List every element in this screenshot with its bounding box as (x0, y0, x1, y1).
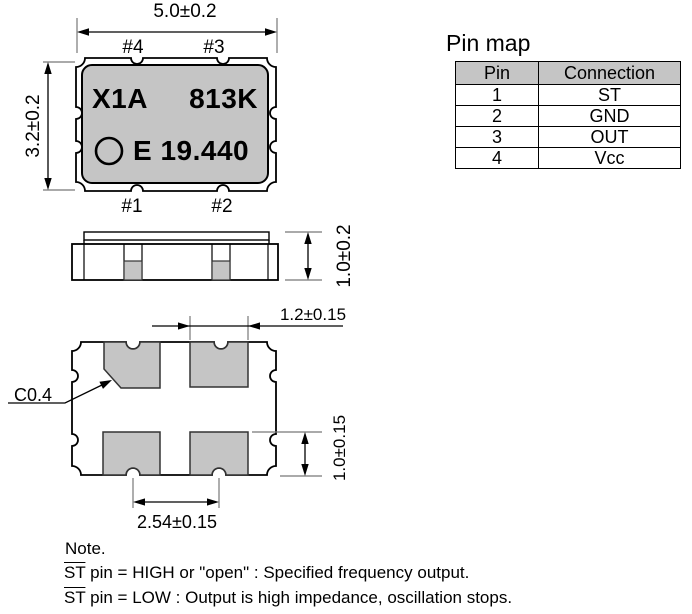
pin-connection: GND (539, 106, 681, 127)
pin-number: 2 (456, 106, 539, 127)
thickness-dimension-arrow (304, 232, 311, 280)
table-row: 1 ST (456, 85, 681, 106)
side-pad-left (124, 261, 142, 280)
bottom-view-drawing (8, 316, 343, 508)
side-view-drawing (72, 232, 322, 280)
datasheet-package-drawing: 5.0±0.2 #4 #3 3.2±0.2 X1A 813K E 19.440 … (0, 0, 692, 614)
note-line-2: ST pin = LOW : Output is high impedance,… (64, 588, 512, 607)
pad-2 (190, 342, 248, 387)
pin-number: 1 (456, 85, 539, 106)
pin-connection: OUT (539, 127, 681, 148)
pin-column-header: Pin (456, 62, 539, 85)
note-line-2-text: pin = LOW : Output is high impedance, os… (85, 588, 512, 607)
pin-map-title: Pin map (446, 30, 530, 56)
st-signal-label: ST (64, 588, 85, 607)
st-signal-label: ST (64, 563, 85, 582)
st-signal-label: ST (598, 85, 621, 105)
side-body (72, 244, 278, 280)
pad-pitch-dimension-label: 2.54±0.15 (127, 511, 227, 533)
marking-part-number: X1A (92, 84, 148, 114)
chamfer-label: C0.4 (8, 384, 58, 406)
pin2-label: #2 (202, 196, 242, 218)
side-extension-lines (285, 232, 322, 280)
pin-map-table: Pin Connection 1 ST 2 GND 3 OUT 4 Vcc (455, 61, 681, 169)
table-row: 4 Vcc (456, 148, 681, 169)
table-row: 3 OUT (456, 127, 681, 148)
connection-column-header: Connection (539, 62, 681, 85)
package-marking-line2: E 19.440 (133, 136, 249, 166)
top-width-dimension-label: 5.0±0.2 (115, 1, 255, 23)
side-lid (84, 232, 269, 240)
pad-pitch-dimension (133, 478, 219, 508)
pad-3 (190, 432, 248, 475)
top-height-dimension-label: 3.2±0.2 (23, 66, 45, 186)
marking-lot-code: 813K (189, 84, 258, 114)
width-dimension-arrow (77, 28, 277, 36)
pin-number: 3 (456, 127, 539, 148)
side-pad-right (212, 261, 230, 280)
pin3-label: #3 (194, 37, 234, 59)
side-thickness-dimension-label: 1.0±0.2 (334, 196, 356, 316)
pin1-label: #1 (112, 196, 152, 218)
note-title: Note. (65, 539, 106, 558)
pin-connection: ST (539, 85, 681, 106)
pad-height-dimension-label: 1.0±0.15 (329, 388, 351, 508)
pin-map-header-row: Pin Connection (456, 62, 681, 85)
pin4-label: #4 (113, 37, 153, 59)
pin-connection: Vcc (539, 148, 681, 169)
note-line-1: ST pin = HIGH or "open" : Specified freq… (64, 563, 469, 582)
note-line-1-text: pin = HIGH or "open" : Specified frequen… (85, 563, 469, 582)
pin-number: 4 (456, 148, 539, 169)
table-row: 2 GND (456, 106, 681, 127)
height-dimension-arrow (44, 62, 51, 190)
pad-width-dimension-label: 1.2±0.15 (271, 304, 355, 326)
package-marking-line1: X1A 813K (92, 84, 258, 114)
pad-4 (103, 432, 160, 475)
